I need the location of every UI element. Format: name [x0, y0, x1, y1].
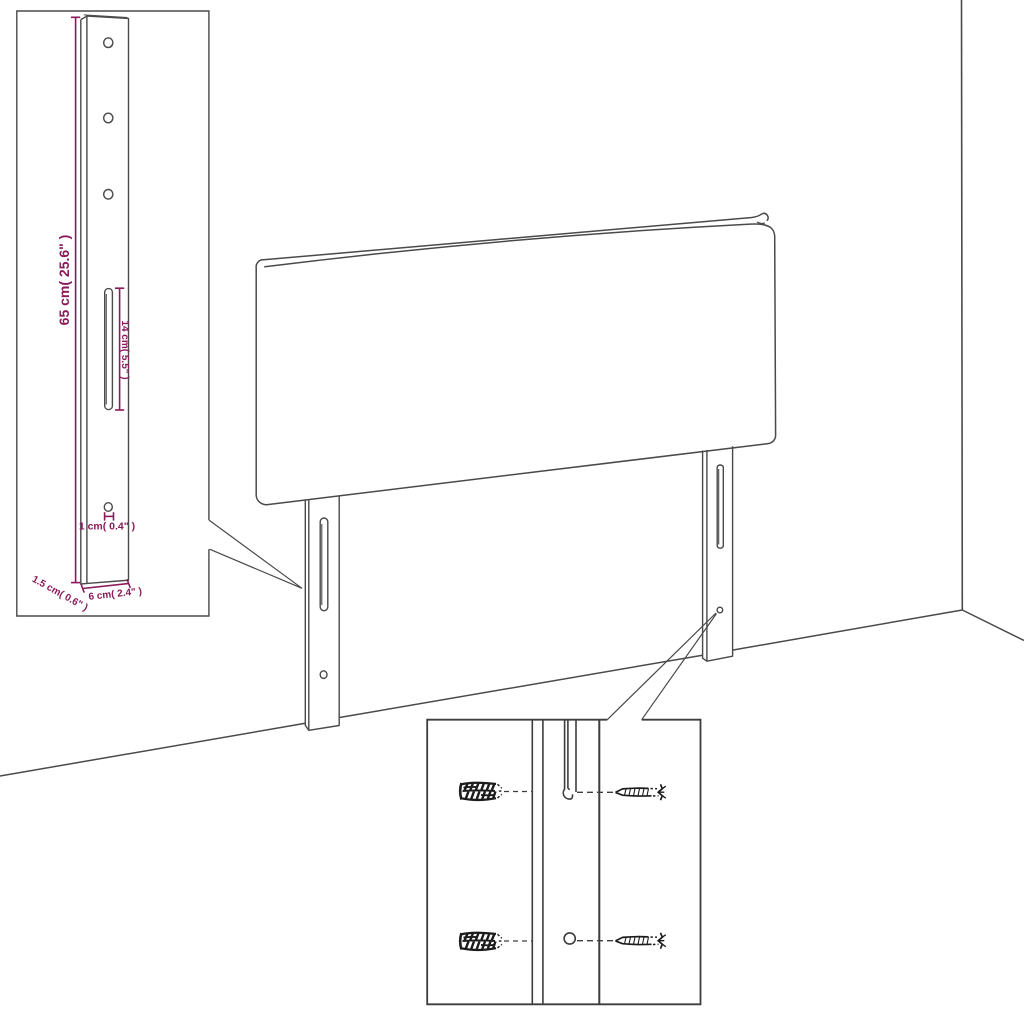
svg-text:65 cm( 25.6" ): 65 cm( 25.6" ) [56, 235, 72, 326]
svg-text:1 cm( 0.4" ): 1 cm( 0.4" ) [79, 521, 135, 533]
svg-text:14 cm( 5.5" ): 14 cm( 5.5" ) [119, 320, 130, 379]
